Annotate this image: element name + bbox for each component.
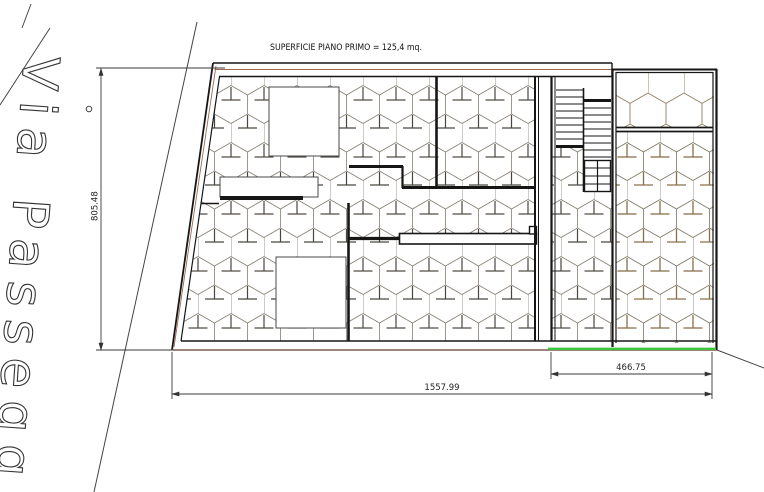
stair-strip-hatch-left [551,148,583,341]
road-edge-right [94,22,197,492]
dim-label-total-width: 1557.99 [424,383,459,393]
wall-band-lower [400,234,537,245]
stair-flight-right [584,108,611,157]
road-edge-top-segment [22,4,31,28]
opening-upper [269,87,339,156]
dim-label-height: 805.48 [91,191,101,221]
balcony-hatch [616,72,714,128]
floor-hatching [181,72,714,343]
floor-plan-canvas: Via Passegg [0,0,764,492]
dim-label-right-width: 466.75 [616,363,646,373]
terrace-hatch [616,131,714,343]
main-floor-hatch [181,77,535,341]
street-name-label: Via Passegg [0,54,70,487]
degree-mark [86,106,92,112]
plan-title: SUPERFICIE PIANO PRIMO = 125,4 mq. [270,43,422,53]
opening-lower [276,257,346,328]
stair-flight-left [556,90,583,139]
road-edge-bottom-right [717,350,764,368]
stair-strip-hatch-right [583,192,612,341]
floor-plan-drawing: Via Passegg [0,0,764,492]
opening-middle-band [220,177,318,197]
